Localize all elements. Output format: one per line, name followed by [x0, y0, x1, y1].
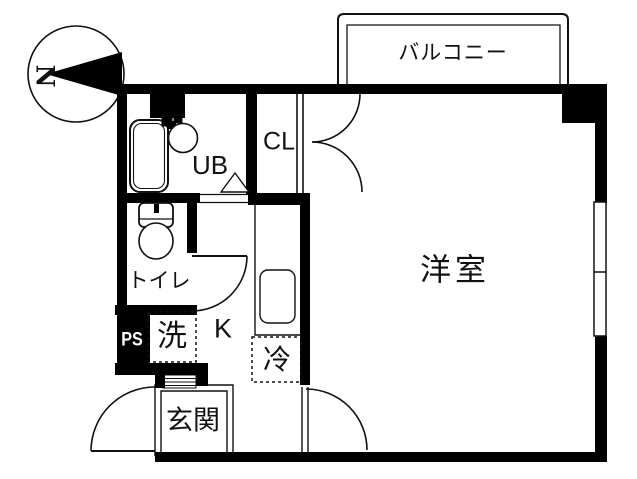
wall-right-lower	[595, 336, 607, 462]
kitchen-sink-icon	[260, 270, 295, 323]
floor-plan: N バルコニー CL UB トイレ PS 洗 K 冷 玄関 洋室	[0, 0, 637, 479]
wall-bottom	[155, 452, 607, 462]
label-balcony: バルコニー	[398, 43, 508, 64]
wall-lower-left	[115, 363, 208, 375]
bath-sink-icon	[167, 121, 198, 153]
wall-toilet-bottom	[115, 305, 197, 315]
wall-stub-right	[196, 375, 208, 386]
compass-north-label: N	[33, 65, 58, 88]
label-toilet: トイレ	[128, 271, 191, 292]
toilet-door	[192, 256, 247, 311]
wall-toilet-right	[187, 203, 197, 253]
label-unit-bath: UB	[192, 152, 228, 178]
label-closet: CL	[263, 130, 295, 155]
wall-top	[117, 84, 607, 94]
bath-column-block	[150, 93, 185, 118]
label-kitchen: K	[214, 316, 232, 343]
bathtub	[130, 120, 168, 192]
room-door	[302, 387, 367, 452]
kitchen-counter	[255, 205, 300, 335]
closet-door-arc-lower	[312, 142, 362, 192]
front-door	[91, 387, 155, 451]
label-washing-machine: 洗	[157, 322, 187, 352]
label-entrance: 玄関	[166, 408, 220, 435]
floor-plan-drawing	[0, 0, 637, 479]
label-western-room: 洋室	[420, 255, 490, 286]
wall-stub-left	[155, 375, 165, 388]
ub-door-threshold	[200, 195, 248, 203]
closet-doors	[297, 94, 362, 193]
entrance-step	[163, 375, 196, 388]
closet-door-arc-upper	[312, 94, 360, 142]
toilet-icon	[139, 203, 173, 259]
window	[594, 202, 606, 336]
wall-right-upper	[595, 84, 607, 203]
label-refrigerator: 冷	[263, 346, 291, 374]
wall-ub-cl-divider	[246, 94, 257, 194]
wall-ub-bottom-left	[117, 193, 200, 203]
label-pipe-space: PS	[121, 331, 143, 350]
